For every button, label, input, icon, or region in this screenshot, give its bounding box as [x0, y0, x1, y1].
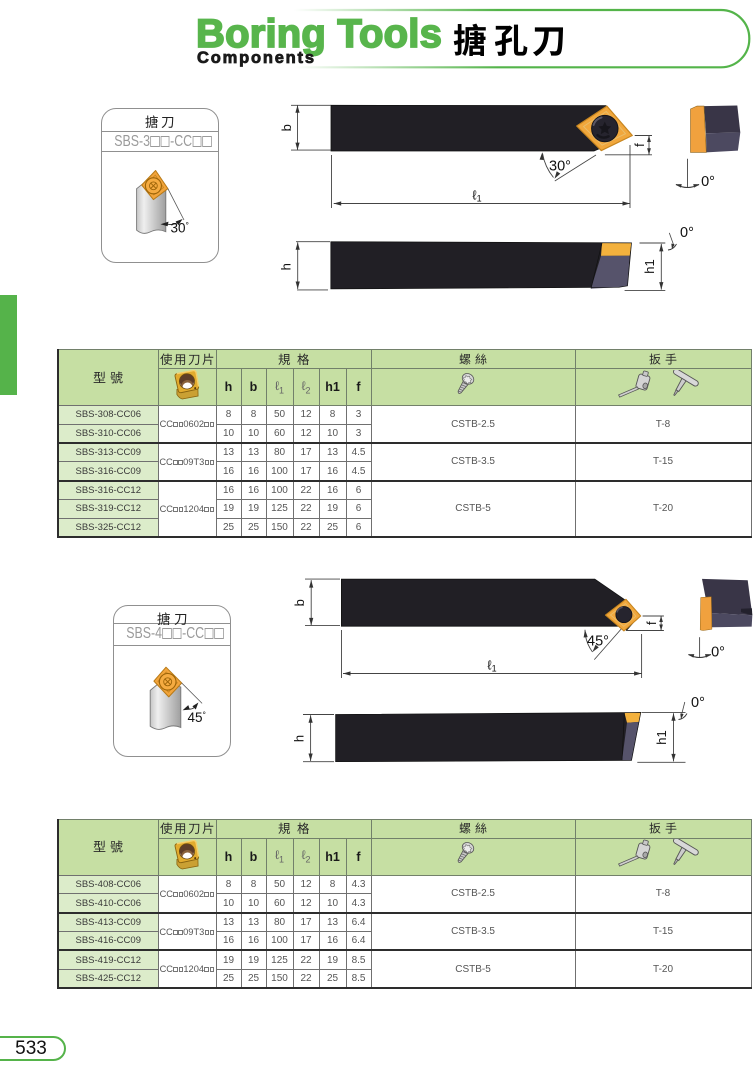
svg-text:b: b — [292, 599, 307, 606]
svg-text:h1: h1 — [654, 730, 669, 744]
svg-text:45°: 45° — [587, 634, 609, 650]
svg-text:h1: h1 — [642, 259, 657, 273]
svg-text:ℓ1: ℓ1 — [472, 188, 481, 204]
svg-text:0°: 0° — [680, 225, 694, 241]
svg-text:h: h — [279, 263, 294, 270]
svg-text:0°: 0° — [711, 645, 725, 661]
svg-text:f: f — [644, 621, 659, 625]
svg-text:f: f — [632, 143, 647, 147]
svg-text:b: b — [279, 124, 294, 131]
svg-text:0°: 0° — [701, 174, 715, 190]
svg-text:h: h — [291, 735, 306, 742]
svg-text:ℓ1: ℓ1 — [487, 658, 496, 674]
svg-text:30°: 30° — [549, 159, 571, 175]
svg-text:0°: 0° — [691, 695, 705, 711]
